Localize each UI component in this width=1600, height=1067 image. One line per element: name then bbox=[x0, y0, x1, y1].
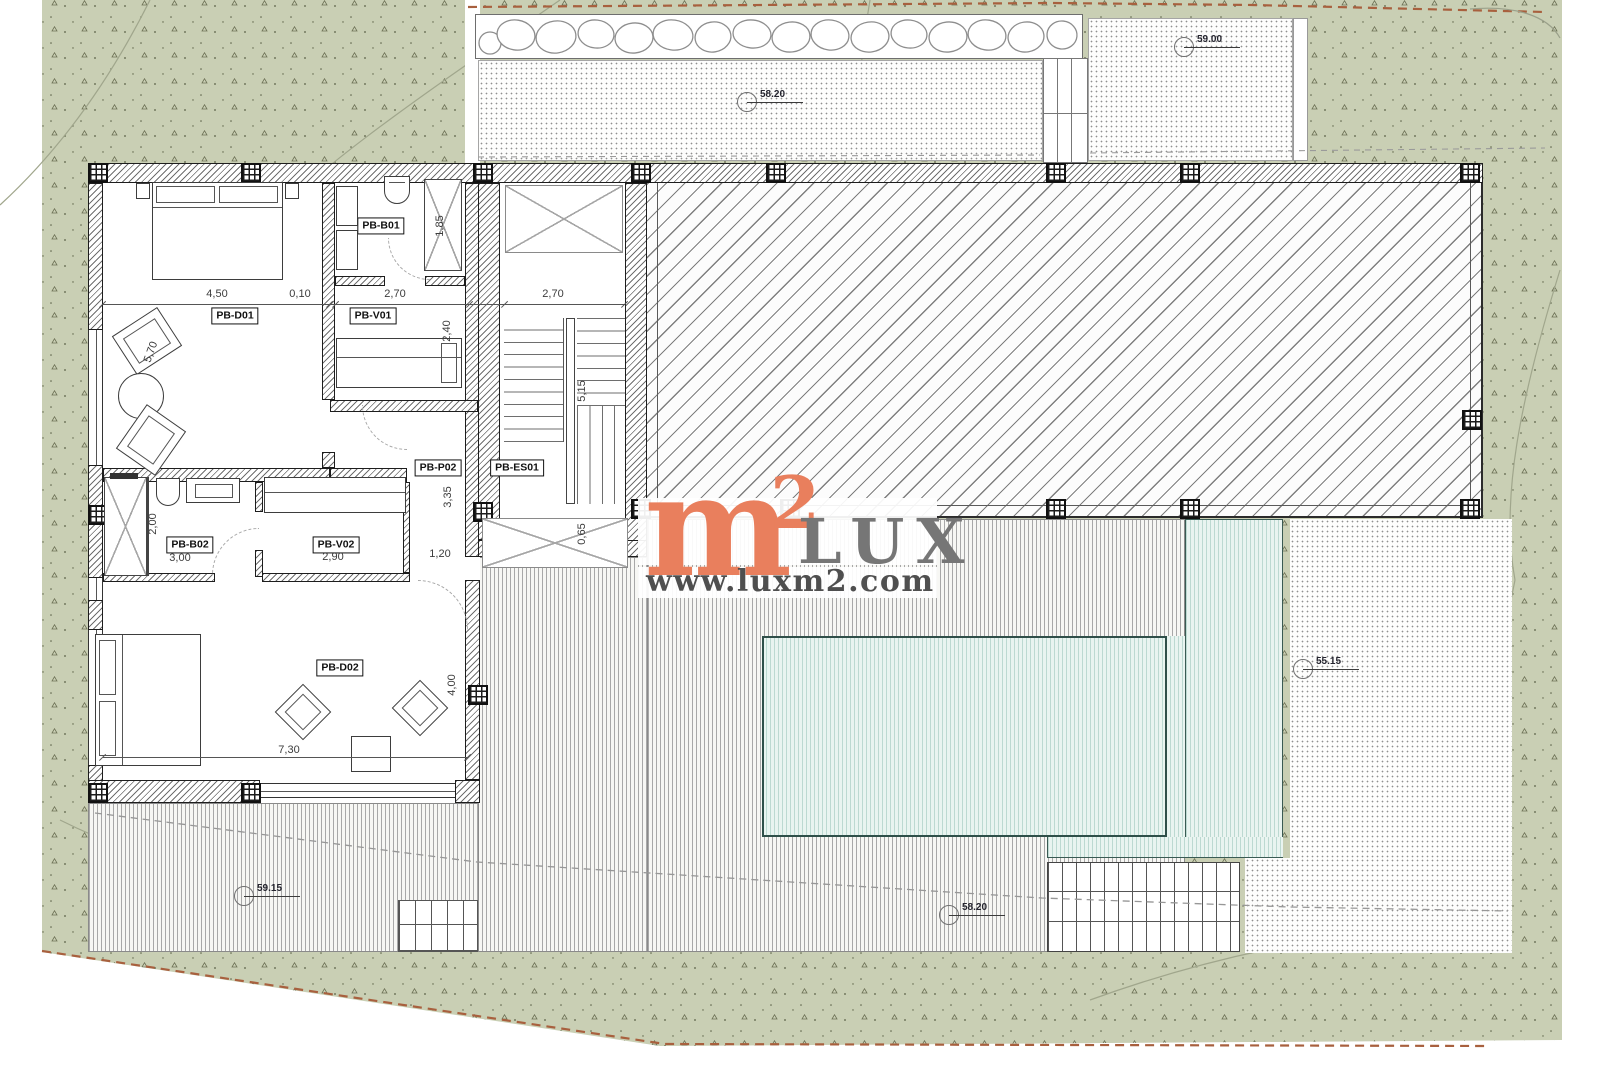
column-marker bbox=[1460, 499, 1480, 519]
upper-wall-strip-right bbox=[1293, 18, 1308, 161]
bed-2 bbox=[95, 634, 201, 766]
side-table bbox=[351, 736, 391, 772]
wall-v02-d02 bbox=[262, 573, 410, 582]
wall-d01-b01 bbox=[322, 183, 335, 400]
room-label-pb-p02: PB-P02 bbox=[415, 459, 462, 476]
dimension-line-bottom bbox=[103, 757, 468, 758]
dim-0-10: 0,10 bbox=[289, 288, 310, 300]
upper-steps-strip bbox=[1043, 58, 1088, 163]
watermark-url: www.luxm2.com bbox=[646, 567, 935, 597]
room-label-pb-v02: PB-V02 bbox=[313, 536, 360, 553]
elevation-marker-58-20-top: 58.20 bbox=[737, 92, 847, 116]
column-marker bbox=[1046, 163, 1066, 183]
dimension-line-top bbox=[103, 304, 625, 305]
elevation-marker-59-00: 59.00 bbox=[1174, 37, 1284, 61]
wall-west-1 bbox=[88, 183, 103, 330]
room-label-pb-b02: PB-B02 bbox=[166, 536, 213, 553]
shower-head bbox=[110, 473, 138, 479]
wall-south-2 bbox=[455, 780, 480, 803]
site-boundary-top bbox=[468, 3, 1545, 12]
gravel-right bbox=[1290, 519, 1512, 858]
stone-wall-stones bbox=[476, 15, 1081, 57]
column-marker bbox=[88, 783, 108, 803]
wall-stair-west bbox=[478, 183, 500, 540]
deck-center bbox=[478, 557, 648, 952]
deck-stair-grate bbox=[398, 900, 478, 952]
dim-7-30: 7,30 bbox=[278, 744, 299, 756]
dim-5-15: 5,15 bbox=[576, 380, 588, 401]
wall-d01-v01-stub bbox=[322, 452, 335, 468]
wall-south-1 bbox=[88, 780, 260, 803]
wall-b01-v01-a bbox=[335, 276, 385, 286]
window-west-bedroom1 bbox=[88, 330, 103, 465]
dim-2-70-b: 2,70 bbox=[542, 288, 563, 300]
stair-flight-lower bbox=[577, 406, 625, 504]
column-marker bbox=[1046, 499, 1066, 519]
window-south-bedroom2 bbox=[260, 783, 470, 798]
dim-3-00: 3,00 bbox=[169, 552, 190, 564]
stone-wall bbox=[475, 14, 1083, 59]
pool-side-channel bbox=[1185, 519, 1283, 858]
pool-steps bbox=[1047, 862, 1240, 952]
stair-spine bbox=[566, 318, 575, 504]
gravel-bottom-right bbox=[1245, 858, 1512, 953]
column-marker bbox=[473, 163, 493, 183]
bed-1 bbox=[152, 182, 283, 280]
wall-north bbox=[88, 163, 647, 183]
column-marker bbox=[241, 783, 261, 803]
stair-void bbox=[505, 185, 623, 253]
column-marker bbox=[241, 163, 261, 183]
wall-b02-v02-a bbox=[255, 482, 263, 512]
dim-4-50: 4,50 bbox=[206, 288, 227, 300]
site-boundary-bottom bbox=[42, 951, 1485, 1046]
bath1-cabinet bbox=[336, 186, 358, 226]
column-marker bbox=[1462, 410, 1482, 430]
shower-2 bbox=[104, 477, 147, 576]
column-marker bbox=[1180, 499, 1200, 519]
pool-bottom-channel bbox=[1047, 837, 1283, 858]
lightwell-grate bbox=[482, 518, 628, 568]
room-label-pb-es01: PB-ES01 bbox=[490, 459, 544, 476]
washbasin-counter bbox=[186, 478, 240, 503]
room-label-pb-b01: PB-B01 bbox=[357, 217, 404, 234]
elevation-marker-58-20-bottom: 58.20 bbox=[939, 905, 1049, 929]
wardrobe-v01 bbox=[336, 338, 462, 388]
floor-plan-canvas: 4,50 0,10 2,70 2,70 1,85 2,40 5,70 3,35 … bbox=[0, 0, 1600, 1067]
wall-east-block-2 bbox=[465, 580, 480, 780]
window-west-bath2 bbox=[88, 578, 103, 600]
room-label-pb-d02: PB-D02 bbox=[316, 659, 363, 676]
dim-2-00: 2,00 bbox=[147, 513, 159, 534]
elevation-marker-55-15: 55.15 bbox=[1293, 659, 1403, 683]
room-label-pb-v01: PB-V01 bbox=[350, 307, 397, 324]
column-marker bbox=[468, 685, 488, 705]
column-marker bbox=[766, 163, 786, 183]
dim-3-35: 3,35 bbox=[442, 486, 454, 507]
dim-2-40: 2,40 bbox=[441, 320, 453, 341]
wall-west-3 bbox=[88, 600, 103, 630]
dim-1-85: 1,85 bbox=[434, 215, 446, 236]
nightstand bbox=[285, 183, 299, 199]
column-marker bbox=[1180, 163, 1200, 183]
nightstand bbox=[136, 183, 150, 199]
column-marker bbox=[1460, 163, 1480, 183]
elevation-marker-59-15: 59.15 bbox=[234, 886, 344, 910]
stair-flight-left bbox=[504, 318, 564, 442]
wall-b01-v01-b bbox=[425, 276, 465, 286]
column-marker bbox=[88, 163, 108, 183]
room-label-pb-d01: PB-D01 bbox=[211, 307, 258, 324]
dim-2-70-a: 2,70 bbox=[384, 288, 405, 300]
dim-0-65: 0,65 bbox=[576, 523, 588, 544]
pool-edge bbox=[762, 636, 1167, 837]
toilet bbox=[156, 478, 180, 506]
wardrobe-v02 bbox=[264, 477, 406, 513]
dim-4-00: 4,00 bbox=[446, 674, 458, 695]
dim-1-20: 1,20 bbox=[429, 548, 450, 560]
bath1-cabinet bbox=[336, 230, 358, 270]
column-marker bbox=[631, 163, 651, 183]
toilet bbox=[384, 176, 410, 204]
